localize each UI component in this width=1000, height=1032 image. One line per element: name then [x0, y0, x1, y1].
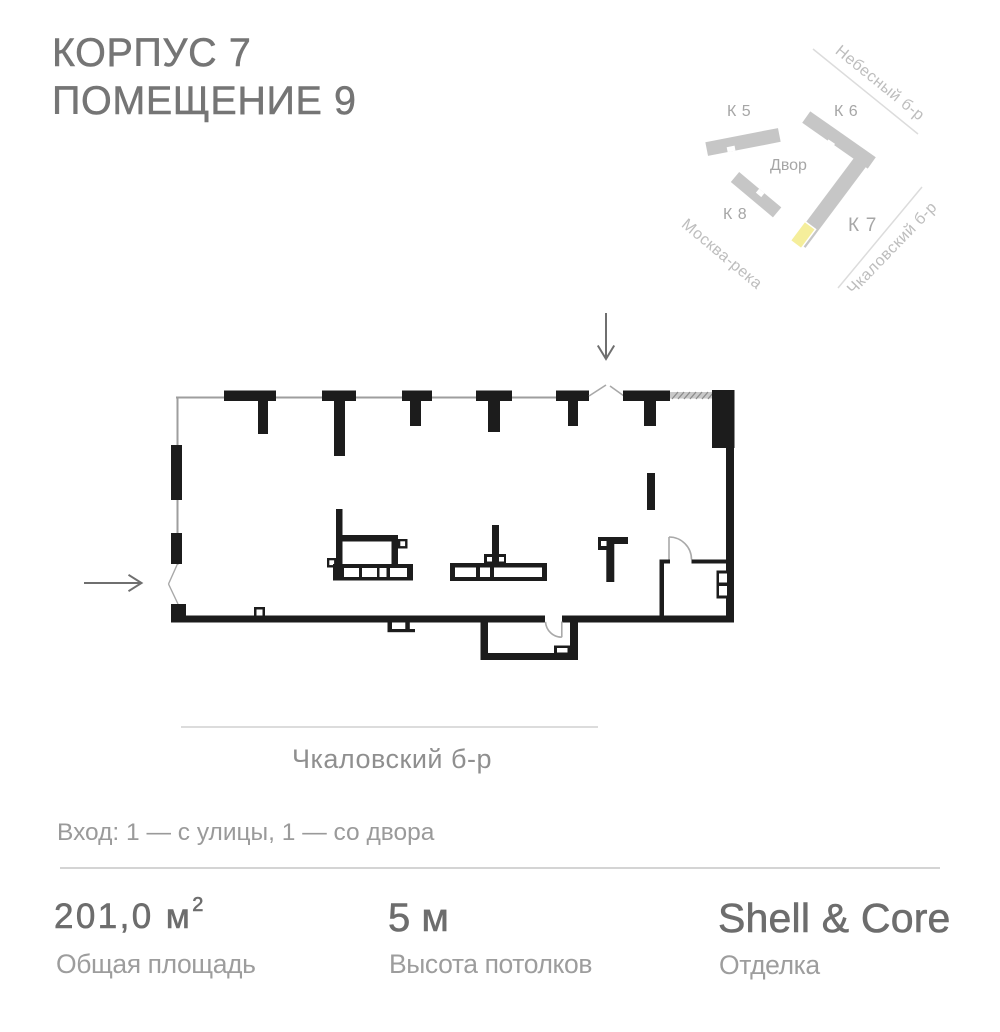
svg-text:К 8: К 8 [723, 206, 747, 223]
svg-text:Чкаловский б-р: Чкаловский б-р [844, 199, 941, 298]
svg-text:К 5: К 5 [727, 103, 751, 120]
svg-text:Москва-река: Москва-река [678, 216, 765, 293]
svg-text:К 6: К 6 [834, 103, 858, 120]
svg-text:К 7: К 7 [848, 215, 877, 236]
svg-text:Двор: Двор [770, 157, 807, 174]
